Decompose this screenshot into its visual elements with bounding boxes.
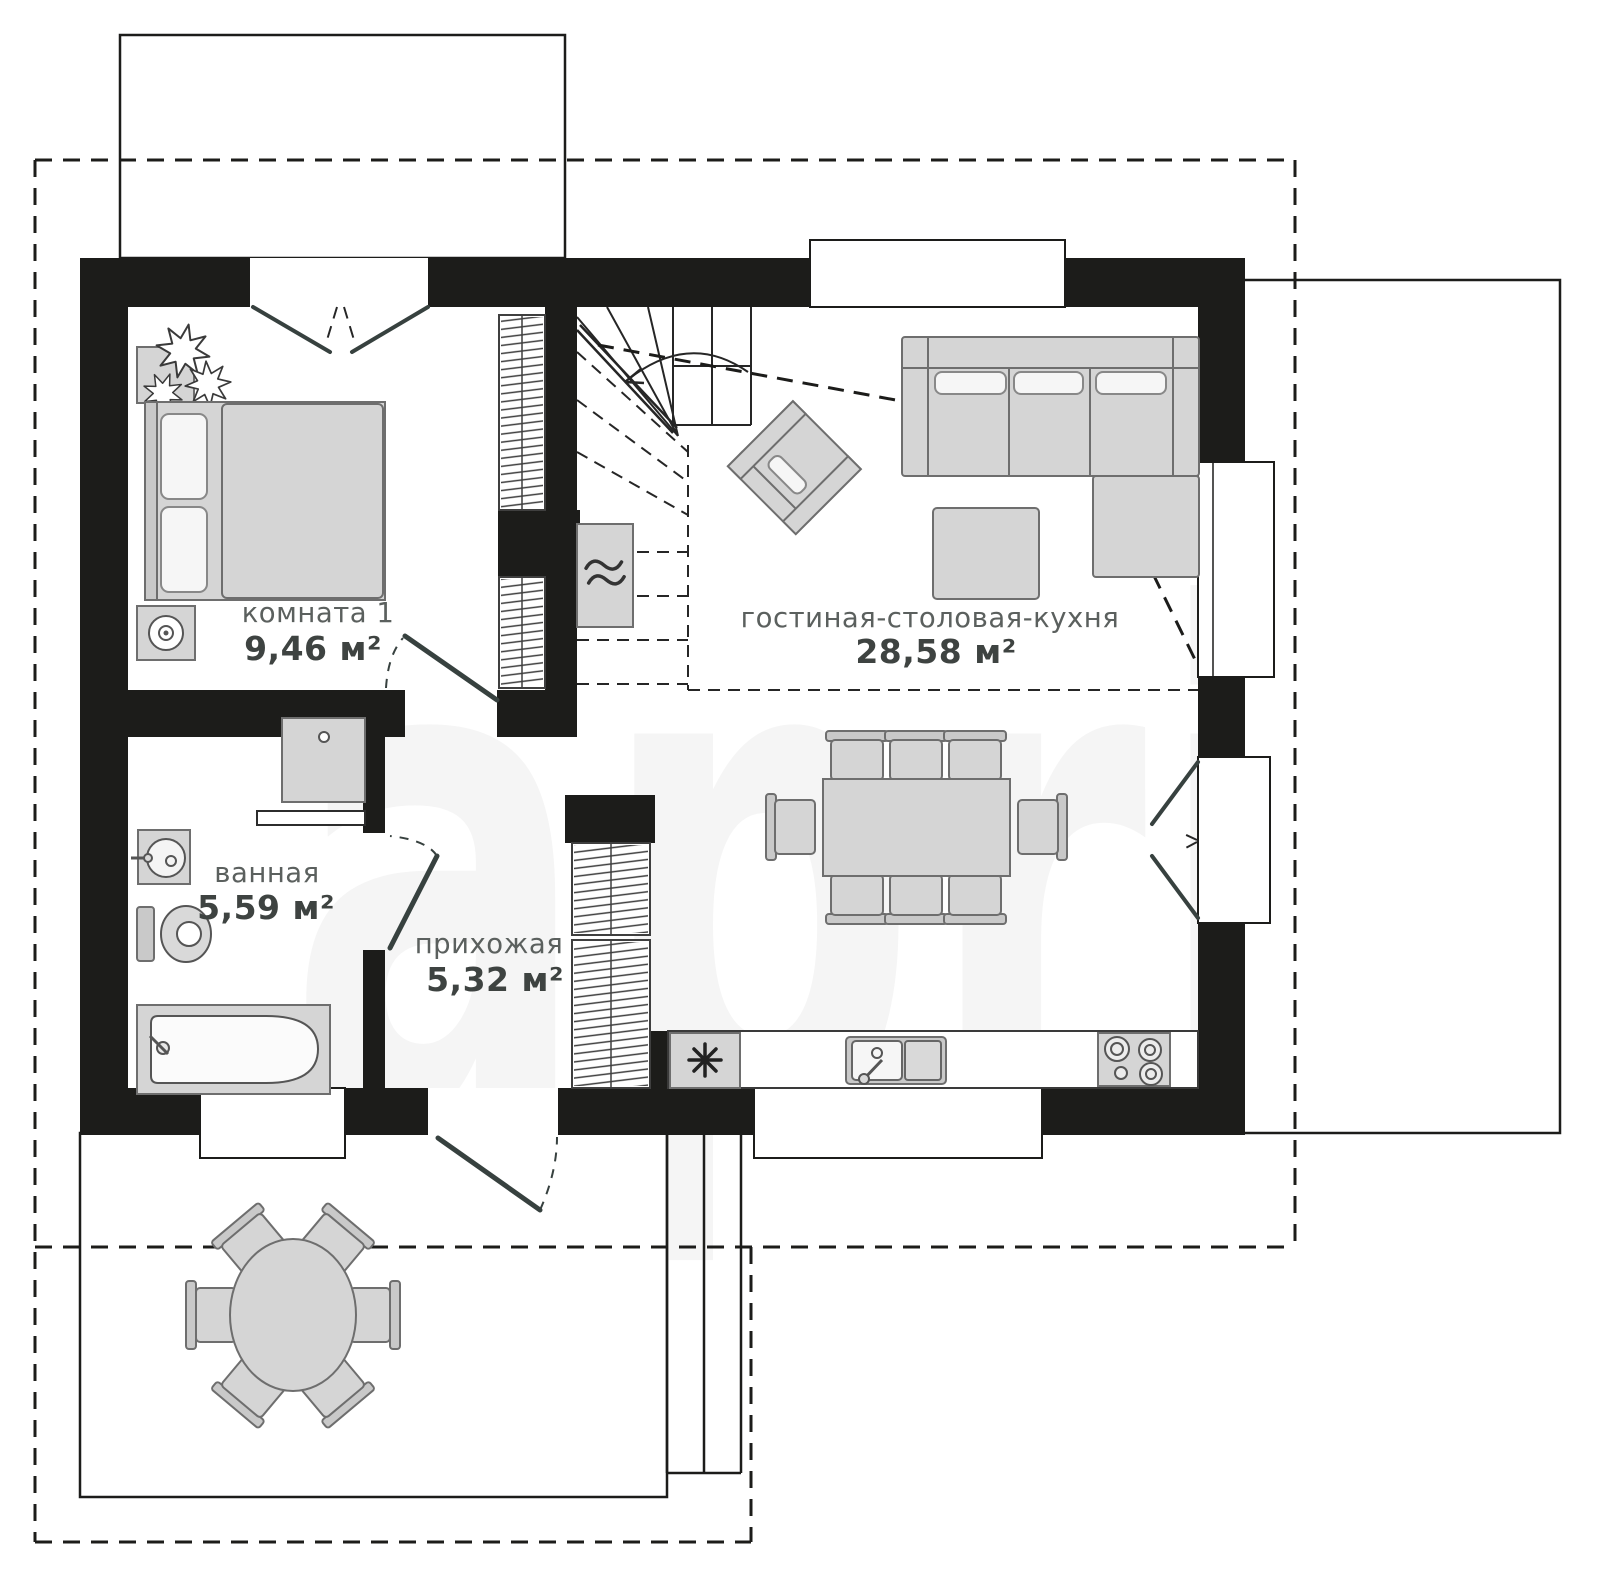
- floor-plan-page: april: [0, 0, 1597, 1581]
- wall-top-1: [80, 258, 250, 307]
- room-name: комната 1: [242, 597, 395, 629]
- wall-closet-stub: [565, 795, 655, 843]
- window-kitchen-bottom: [754, 1088, 1042, 1158]
- wall-bath-east-2: [363, 950, 385, 1088]
- hallway-closet: [572, 843, 650, 1088]
- wall-bedroom-east: [545, 307, 577, 690]
- coffee-table: [933, 508, 1039, 599]
- boiler: [577, 524, 633, 627]
- bathroom-sink: [131, 830, 190, 884]
- room-name: прихожая: [415, 928, 564, 960]
- sofa-cushion: [1014, 372, 1083, 394]
- bathroom-shelf: [257, 811, 365, 825]
- wall-right-2: [1198, 677, 1245, 757]
- room-name: ванная: [214, 857, 319, 889]
- room-area: 5,32 м²: [426, 960, 564, 999]
- washing-machine: [282, 718, 365, 802]
- stove: [1098, 1033, 1170, 1086]
- room-name: гостиная-столовая-кухня: [741, 602, 1120, 634]
- right-porch-outline: [1230, 280, 1560, 1133]
- kitchen-sink: [846, 1037, 946, 1084]
- window-living-right: [1198, 462, 1274, 677]
- bed-headboard: [145, 402, 157, 600]
- bathtub: [137, 1005, 330, 1094]
- fridge-asterisk-icon: [689, 1044, 721, 1076]
- wall-bottom-2: [345, 1088, 428, 1135]
- bed-blanket: [222, 404, 383, 598]
- fridge: [670, 1033, 740, 1088]
- wall-bath-east-1: [363, 737, 385, 833]
- nightstand-lamp: [137, 606, 195, 660]
- bedroom-wardrobe: [499, 315, 545, 688]
- bed-pillow-1: [161, 414, 207, 499]
- floor-plan-svg: april: [0, 0, 1597, 1581]
- wall-bottom-3: [558, 1088, 754, 1135]
- window-living-top: [810, 240, 1065, 307]
- upper-balcony-outline: [120, 35, 565, 258]
- wall-top-2: [428, 258, 810, 307]
- window-bathroom-bottom: [200, 1088, 345, 1158]
- room-area: 9,46 м²: [244, 629, 382, 668]
- room-label-hallway: прихожая 5,32 м²: [415, 928, 564, 999]
- sofa-cushion: [1096, 372, 1166, 394]
- wall-pier: [498, 510, 580, 577]
- room-label-bathroom: ванная 5,59 м²: [197, 857, 335, 927]
- room-label-bedroom: комната 1 9,46 м²: [242, 597, 395, 668]
- wall-right-1: [1198, 258, 1245, 462]
- wall-bottom-4: [1042, 1088, 1245, 1135]
- terrace-table: [230, 1239, 356, 1391]
- sofa-chaise: [1093, 476, 1199, 577]
- bed: [145, 402, 385, 600]
- dining-table: [823, 779, 1010, 876]
- bed-pillow-2: [161, 507, 207, 592]
- wall-bottom-1: [80, 1088, 200, 1135]
- wall-bedroom-south-2: [497, 690, 577, 737]
- window-bedroom-top: [250, 258, 428, 352]
- room-area: 28,58 м²: [855, 632, 1016, 671]
- room-area: 5,59 м²: [197, 888, 335, 927]
- sofa-cushion: [935, 372, 1006, 394]
- wall-kitchen-stub: [650, 1031, 668, 1088]
